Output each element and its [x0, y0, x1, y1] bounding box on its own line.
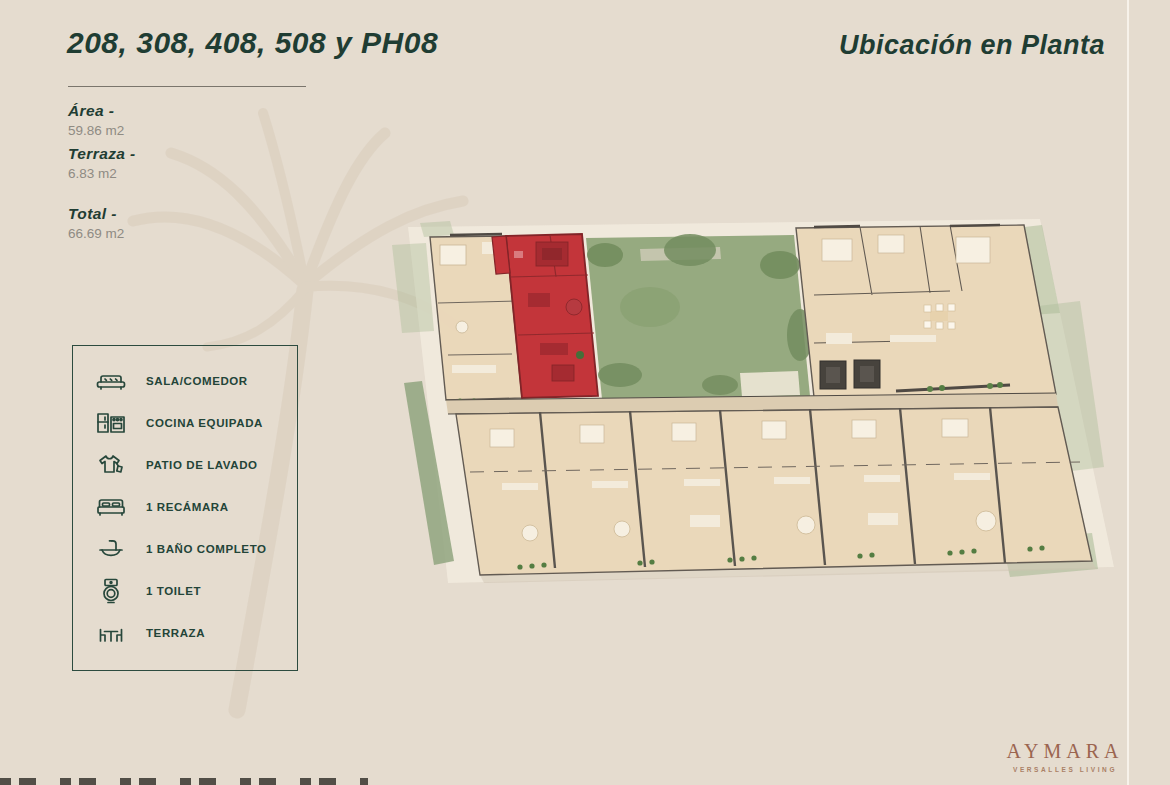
legend-item: PATIO DE LAVADO: [73, 444, 297, 486]
legend-item-label: TERRAZA: [146, 627, 205, 639]
page-edge-rule: [1127, 0, 1129, 785]
legend-item-label: PATIO DE LAVADO: [146, 459, 258, 471]
legend-item: 1 BAÑO COMPLETO: [73, 528, 297, 570]
clipped-text-fragment: [0, 778, 368, 785]
laundry-icon: [93, 450, 129, 480]
sofa-icon: [93, 366, 129, 396]
unit-row-bottom: [456, 407, 1092, 575]
amenities-legend: SALA/COMEDOR COCINA EQUIPADA: [72, 345, 298, 671]
spec-terraza-label: Terraza -: [68, 145, 136, 163]
toilet-icon: [93, 576, 129, 606]
page: 208, 308, 408, 508 y PH08 Ubicación en P…: [0, 0, 1170, 785]
page-title-location: Ubicación en Planta: [700, 30, 1105, 61]
terrace-icon: [93, 618, 129, 648]
legend-item-label: COCINA EQUIPADA: [146, 417, 263, 429]
unit-specs: Área - 59.86 m2 Terraza - 6.83 m2 Total …: [68, 102, 136, 248]
legend-item-label: 1 BAÑO COMPLETO: [146, 543, 267, 555]
legend-item-label: 1 RECÁMARA: [146, 501, 229, 513]
spec-total-label: Total -: [68, 205, 136, 223]
legend-item: 1 TOILET: [73, 570, 297, 612]
floorplan: [390, 215, 1130, 585]
spec-area-value: 59.86 m2: [68, 123, 136, 138]
legend-item: SALA/COMEDOR: [73, 360, 297, 402]
title-underline: [68, 86, 306, 87]
kitchen-icon: [93, 408, 129, 438]
spec-area-label: Área -: [68, 102, 136, 120]
unit-block-right: [796, 225, 1056, 397]
spec-total-value: 66.69 m2: [68, 226, 136, 241]
brand-name: AYMARA: [1000, 740, 1130, 763]
courtyard-garden: [586, 234, 813, 399]
spec-terraza-value: 6.83 m2: [68, 166, 136, 181]
brand-logo: AYMARA VERSALLES LIVING: [1000, 740, 1130, 773]
spec-area: Área - 59.86 m2: [68, 102, 136, 138]
legend-item: 1 RECÁMARA: [73, 486, 297, 528]
legend-item: COCINA EQUIPADA: [73, 402, 297, 444]
legend-item-label: SALA/COMEDOR: [146, 375, 248, 387]
legend-item: TERRAZA: [73, 612, 297, 654]
brand-tagline: VERSALLES LIVING: [1000, 766, 1130, 773]
page-title-units: 208, 308, 408, 508 y PH08: [67, 26, 438, 60]
spec-total: Total - 66.69 m2: [68, 205, 136, 241]
spec-terraza: Terraza - 6.83 m2: [68, 145, 136, 181]
legend-item-label: 1 TOILET: [146, 585, 201, 597]
bed-icon: [93, 492, 129, 522]
sink-icon: [93, 534, 129, 564]
